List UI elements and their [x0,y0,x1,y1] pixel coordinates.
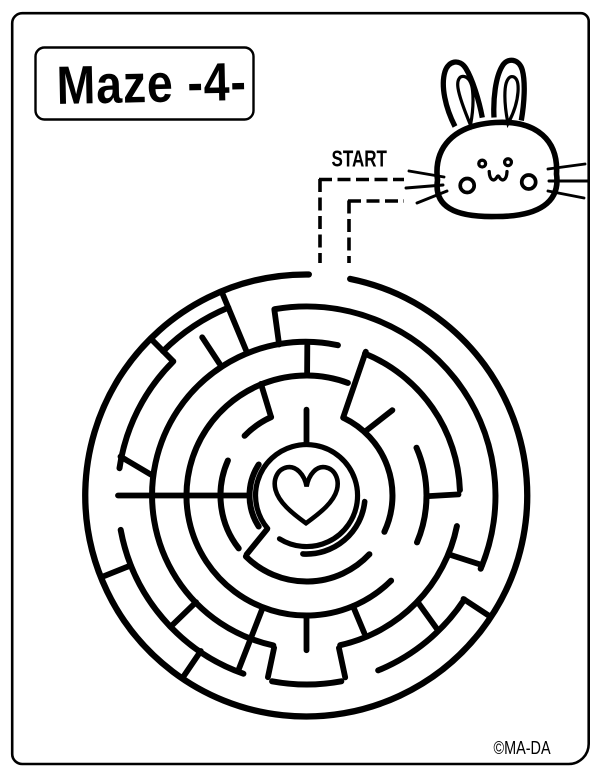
svg-text:Maze -4-: Maze -4- [56,51,247,116]
svg-text:START: START [332,147,388,172]
svg-text:©MA-DA: ©MA-DA [494,737,552,758]
